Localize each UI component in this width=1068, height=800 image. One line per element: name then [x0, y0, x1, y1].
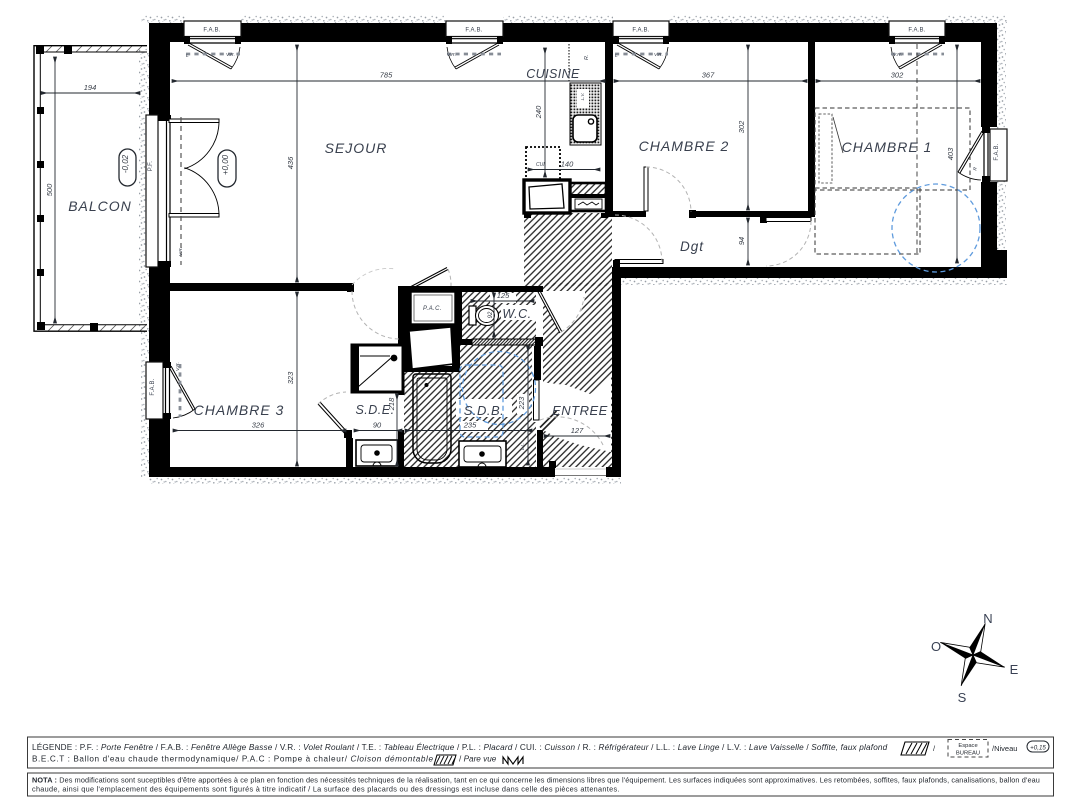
svg-text:326: 326 [252, 421, 265, 430]
svg-text:436: 436 [286, 156, 295, 169]
svg-text:F.A.B.: F.A.B. [203, 28, 220, 34]
svg-text:Espace: Espace [958, 743, 977, 749]
svg-text:L.L.: L.L. [520, 443, 525, 450]
svg-text:500: 500 [45, 183, 54, 196]
svg-text:194: 194 [84, 83, 97, 92]
svg-text:94: 94 [737, 237, 746, 245]
svg-text:235: 235 [463, 421, 477, 430]
svg-text:F.A.B.: F.A.B. [994, 143, 1000, 160]
svg-text:CUISINE: CUISINE [526, 67, 580, 81]
svg-text:302: 302 [891, 71, 904, 80]
svg-text:SEJOUR: SEJOUR [325, 140, 388, 156]
svg-text:O: O [931, 639, 941, 654]
svg-text:S.D.E.: S.D.E. [355, 403, 394, 417]
svg-text:323: 323 [286, 371, 295, 384]
svg-text:CHAMBRE 2: CHAMBRE 2 [639, 138, 730, 154]
svg-text:+0,00: +0,00 [221, 154, 230, 175]
svg-text:L: L [615, 53, 618, 59]
svg-text:F.A.B.: F.A.B. [150, 378, 156, 395]
svg-text:V.R.: V.R. [226, 52, 235, 58]
svg-text:/ Pare vue: / Pare vue [459, 755, 497, 764]
svg-text:P.A.C.: P.A.C. [423, 306, 442, 312]
svg-text:S.D.B.: S.D.B. [464, 403, 505, 418]
svg-text:140: 140 [561, 160, 574, 169]
svg-text:367: 367 [702, 71, 715, 80]
svg-text:V.R.: V.R. [178, 247, 184, 256]
svg-text:/Niveau: /Niveau [992, 744, 1017, 753]
svg-text:+0,15: +0,15 [1030, 745, 1046, 752]
svg-text:S: S [958, 690, 967, 705]
svg-text:chaude, ainsi que l'emplacemen: chaude, ainsi que l'emplacement des équi… [32, 785, 620, 794]
svg-text:ENTREE: ENTREE [552, 403, 608, 418]
svg-text:NOTA : Des modifications sont: NOTA : Des modifications sont suceptible… [32, 776, 1040, 785]
svg-text:90: 90 [373, 421, 382, 430]
svg-text:LÉGENDE : P.F. : Porte Fenêtr: LÉGENDE : P.F. : Porte Fenêtre / F.A.B. … [32, 742, 888, 752]
svg-text:-0,02: -0,02 [121, 154, 130, 173]
svg-text:403: 403 [946, 147, 955, 160]
svg-text:223: 223 [517, 396, 526, 410]
svg-text:F.A.B.: F.A.B. [632, 28, 649, 34]
svg-text:W.C.: W.C. [502, 307, 531, 321]
svg-text:B.E.C.T : Ballon d'eau chaude: B.E.C.T : Ballon d'eau chaude thermodyna… [32, 755, 434, 764]
svg-text:CHAMBRE 1: CHAMBRE 1 [842, 139, 933, 155]
svg-text:L.V.: L.V. [580, 93, 585, 101]
svg-text:V.R.: V.R. [893, 52, 902, 58]
svg-text:CUI.: CUI. [536, 162, 546, 168]
svg-text:F.A.B.: F.A.B. [908, 28, 925, 34]
svg-text:E: E [1010, 662, 1019, 677]
svg-text:92: 92 [488, 311, 494, 318]
svg-text:125: 125 [497, 291, 510, 300]
svg-text:V.R.: V.R. [447, 52, 456, 58]
svg-text:V.R.: V.R. [654, 52, 663, 58]
svg-text:127: 127 [571, 426, 584, 435]
svg-text:CHAMBRE 3: CHAMBRE 3 [194, 402, 285, 418]
svg-text:R.: R. [584, 55, 590, 61]
svg-text:BALCON: BALCON [68, 198, 132, 214]
svg-text:N: N [983, 611, 992, 626]
svg-text:785: 785 [380, 71, 393, 80]
svg-text:V.R.: V.R. [175, 362, 181, 371]
svg-text:302: 302 [737, 120, 746, 133]
svg-text:L: L [186, 53, 189, 59]
svg-text:240: 240 [534, 105, 543, 119]
svg-text:P.F.: P.F. [148, 161, 154, 171]
svg-text:F.A.B.: F.A.B. [465, 28, 482, 34]
svg-text:BUREAU: BUREAU [956, 751, 980, 757]
svg-text:Dgt: Dgt [680, 239, 704, 254]
